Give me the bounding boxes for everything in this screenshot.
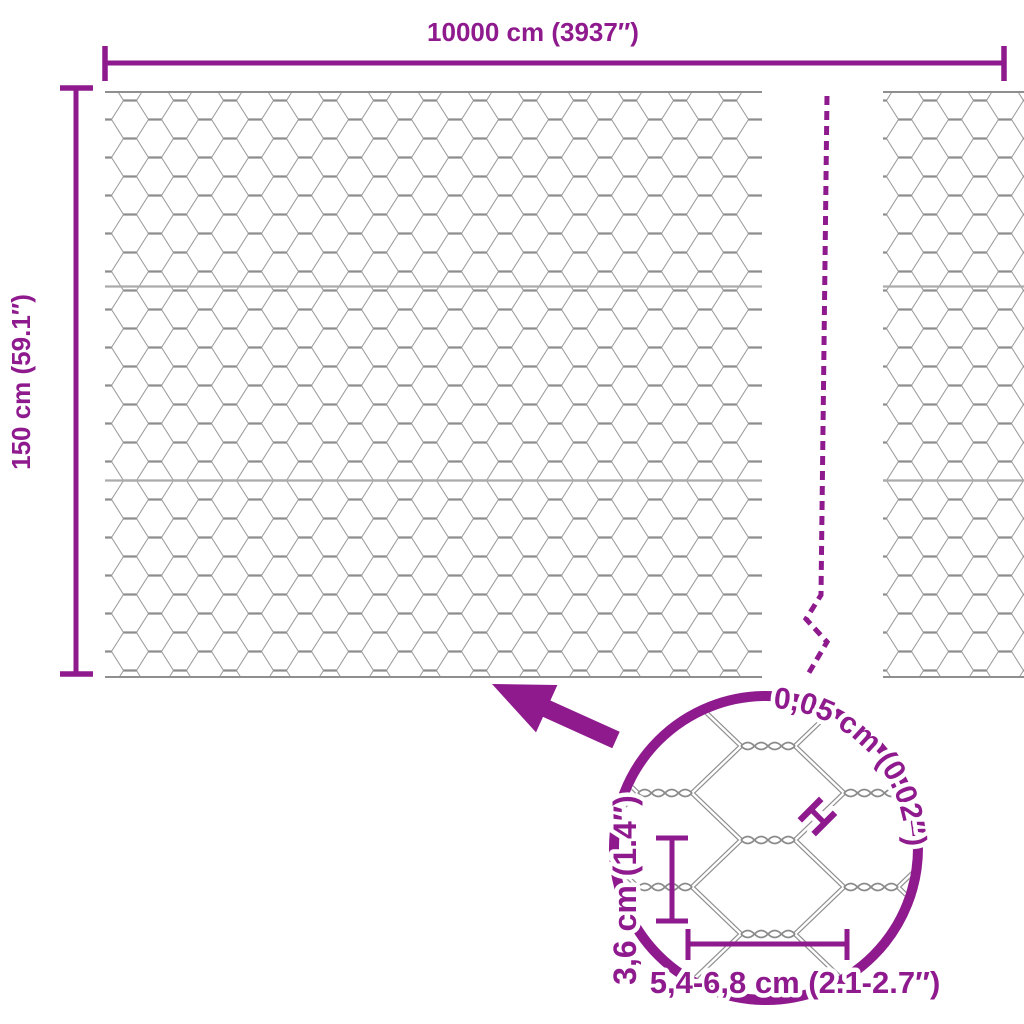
mesh-height-label: 3,6 cm (1.4″): [607, 795, 643, 985]
mesh-panel-right: [883, 91, 1024, 678]
mesh-panel-main: [105, 91, 762, 678]
mesh-detail-circle: H 0,05 cm (0.02″) 3,6 cm (1.4″) 5,4-6,8 …: [607, 682, 940, 1005]
zoom-arrow-icon: [492, 684, 620, 748]
break-line: [806, 96, 827, 676]
diagram-canvas: 10000 cm (3937″) 150 cm (59.1″) H 0,05 c…: [0, 0, 1024, 1024]
product-dimension-diagram: 10000 cm (3937″) 150 cm (59.1″) H 0,05 c…: [0, 0, 1024, 1024]
width-dimension: 10000 cm (3937″): [105, 17, 1004, 81]
height-dimension: 150 cm (59.1″): [6, 88, 93, 674]
width-label: 10000 cm (3937″): [427, 17, 639, 47]
height-label: 150 cm (59.1″): [6, 294, 36, 470]
mesh-width-label: 5,4-6,8 cm (2.1-2.7″): [650, 965, 941, 1000]
